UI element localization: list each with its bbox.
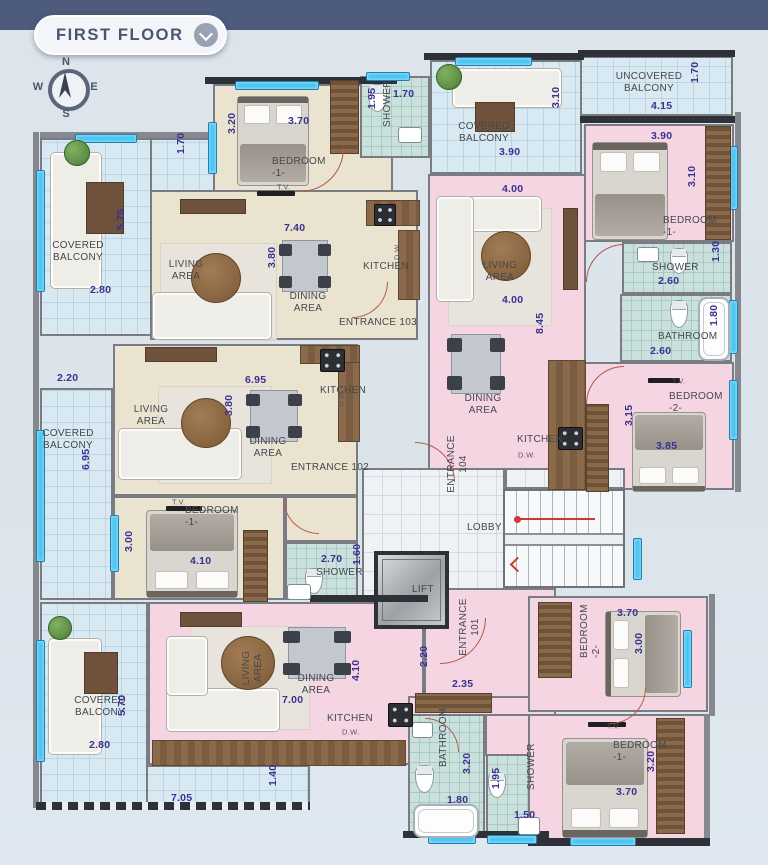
sink xyxy=(637,247,659,262)
wardrobe xyxy=(656,718,685,834)
window xyxy=(570,837,636,846)
label-living-area: LIVING AREA xyxy=(126,404,176,428)
label-living-area: LIVING AREA xyxy=(475,260,525,284)
sink xyxy=(398,127,422,143)
dtable xyxy=(288,627,346,679)
counter xyxy=(152,740,406,766)
label-dining-area: DINING AREA xyxy=(283,291,333,315)
label-covered-balcony: COVERED BALCONY xyxy=(448,121,520,145)
window xyxy=(455,57,532,66)
plant xyxy=(436,64,462,90)
wall-segment xyxy=(578,50,735,57)
dtable xyxy=(250,390,298,442)
wall-segment xyxy=(310,595,428,602)
window xyxy=(235,81,319,90)
label-living-area: LIVING AREA xyxy=(161,259,211,283)
covered-balcony-102 xyxy=(40,388,113,600)
wardrobe xyxy=(415,693,492,713)
sink xyxy=(287,584,311,600)
floor-selector[interactable]: FIRST FLOOR xyxy=(34,15,227,55)
compass-north: N xyxy=(62,56,70,68)
label-dining-area: DINING AREA xyxy=(243,436,293,460)
window xyxy=(208,122,217,174)
stair-path-arrow-icon xyxy=(510,557,526,573)
chevron-down-icon[interactable] xyxy=(194,23,218,47)
window xyxy=(633,538,642,580)
label-uncovered-balcony: UNCOVERED BALCONY xyxy=(597,71,701,95)
wardrobe xyxy=(586,404,609,492)
bed xyxy=(632,412,706,492)
sofa xyxy=(436,196,474,302)
window xyxy=(36,170,45,292)
label-entrance-103: ENTRANCE 103 xyxy=(338,317,418,329)
stove xyxy=(320,349,345,372)
compass-rose: N E S W xyxy=(36,58,100,120)
plant xyxy=(48,616,72,640)
tvunit xyxy=(180,612,242,627)
label-living-area: LIVING AREA xyxy=(241,643,265,693)
stair-path-line xyxy=(518,518,595,520)
stove xyxy=(388,703,413,727)
wall-segment xyxy=(704,714,710,840)
window xyxy=(729,380,738,440)
page-title: FIRST FLOOR xyxy=(56,26,184,45)
tvunit xyxy=(180,199,246,214)
dtable xyxy=(451,334,501,394)
window xyxy=(729,300,738,354)
door-arc xyxy=(586,244,624,282)
compass-east: E xyxy=(90,81,97,93)
window xyxy=(36,640,45,762)
compass-south: S xyxy=(62,108,69,120)
tub xyxy=(413,804,479,838)
bed xyxy=(605,611,681,697)
bed xyxy=(592,142,668,240)
window xyxy=(683,630,692,688)
stairs xyxy=(503,489,625,588)
wardrobe xyxy=(243,530,268,602)
tvbar xyxy=(257,191,295,196)
dtable xyxy=(282,240,328,292)
tvunit xyxy=(563,208,578,290)
window xyxy=(110,515,119,572)
wall-segment xyxy=(709,594,715,716)
wardrobe xyxy=(330,80,359,154)
plant xyxy=(64,140,90,166)
tvunit xyxy=(145,347,217,362)
stair-landing xyxy=(505,533,623,547)
tvunit xyxy=(84,652,118,694)
label-entrance-102: ENTRANCE 102 xyxy=(290,462,370,474)
stove xyxy=(374,204,396,226)
sofa xyxy=(166,636,208,696)
compass-west: W xyxy=(33,81,43,93)
wardrobe xyxy=(538,602,572,678)
label-covered-balcony: COVERED BALCONY xyxy=(46,240,110,264)
label-dining-area: DINING AREA xyxy=(458,393,508,417)
label-entrance-101: ENTRANCE 101 xyxy=(458,594,482,660)
counter xyxy=(548,360,586,490)
label-entrance-104: ENTRANCE 104 xyxy=(446,431,470,497)
floor-plan-page: FIRST FLOOR N E S W COVERED BALCONYBEDRO… xyxy=(0,0,768,865)
window xyxy=(487,835,537,844)
wall-segment xyxy=(580,116,735,123)
